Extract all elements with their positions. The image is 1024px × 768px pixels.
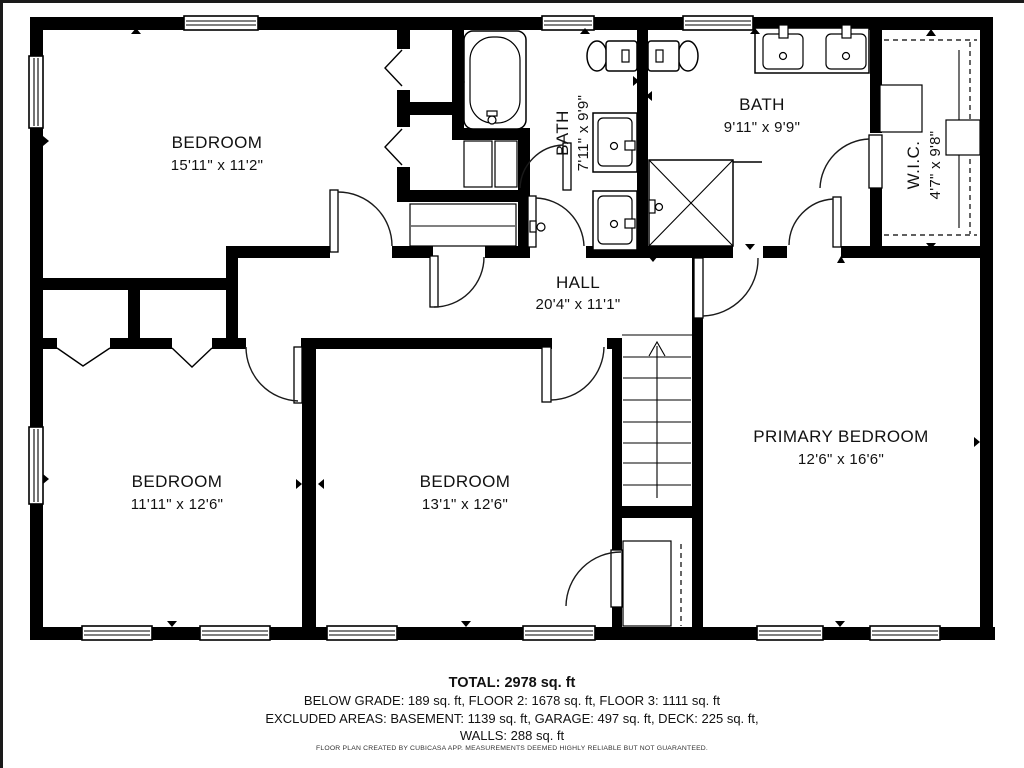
- door: [566, 550, 622, 607]
- bathtub-icon: [464, 31, 526, 129]
- wall: [226, 246, 238, 347]
- wall: [30, 627, 995, 640]
- wall: [407, 102, 452, 115]
- bifold-door-chevron: [385, 50, 402, 86]
- wall: [238, 246, 330, 258]
- door: [789, 197, 841, 247]
- room-label: BEDROOM: [172, 133, 263, 152]
- window: [870, 626, 940, 640]
- floor-plan-drawing: BEDROOM 15'11" x 11'2" BATH 7'11" x 9'9"…: [0, 0, 1024, 768]
- stairs: [622, 335, 692, 498]
- toilet-icon: [587, 41, 637, 71]
- window: [683, 16, 753, 30]
- toilet-icon: [648, 41, 698, 71]
- wic-shelf: [946, 120, 980, 155]
- wall: [110, 338, 172, 349]
- page-left-edge: [0, 0, 3, 768]
- door: [330, 190, 392, 252]
- room-labels: BEDROOM 15'11" x 11'2" BATH 7'11" x 9'9"…: [131, 95, 944, 513]
- wall: [408, 190, 518, 202]
- bifold-door-chevron: [385, 129, 402, 165]
- wall: [612, 607, 622, 628]
- door: [430, 256, 484, 307]
- floor-plan-page: BEDROOM 15'11" x 11'2" BATH 7'11" x 9'9"…: [0, 0, 1024, 768]
- wall: [612, 338, 622, 512]
- area-breakdown-1: BELOW GRADE: 189 sq. ft, FLOOR 2: 1678 s…: [304, 693, 721, 708]
- room-label: BATH: [553, 110, 572, 156]
- wall: [302, 338, 316, 640]
- room-dims: 15'11" x 11'2": [171, 157, 264, 174]
- window: [29, 56, 43, 128]
- room-label: BEDROOM: [420, 472, 511, 491]
- disclaimer-text: FLOOR PLAN CREATED BY CUBICASA APP. MEAS…: [316, 745, 708, 752]
- wall: [841, 246, 980, 258]
- sink-icon: [593, 191, 637, 250]
- wall: [301, 338, 552, 349]
- room-label: BEDROOM: [132, 472, 223, 491]
- wall: [980, 17, 993, 640]
- door: [246, 347, 302, 403]
- wall: [397, 28, 410, 49]
- wall: [637, 28, 648, 258]
- page-top-edge: [0, 0, 1024, 3]
- area-breakdown-3: WALLS: 288 sq. ft: [460, 728, 565, 743]
- under-stairs-closet: [623, 541, 681, 626]
- wall: [212, 338, 246, 349]
- room-dims: 20'4" x 11'1": [535, 296, 620, 313]
- area-breakdown-2: EXCLUDED AREAS: BASEMENT: 1139 sq. ft, G…: [265, 711, 758, 726]
- sink-icon: [593, 113, 637, 172]
- window: [523, 626, 595, 640]
- wall: [870, 188, 882, 246]
- window: [29, 427, 43, 504]
- door: [820, 135, 882, 188]
- room-dims: 11'11" x 12'6": [131, 496, 224, 513]
- window: [327, 626, 397, 640]
- window: [200, 626, 270, 640]
- room-label: PRIMARY BEDROOM: [753, 427, 928, 446]
- window: [542, 16, 594, 30]
- window: [184, 16, 258, 30]
- linen-closet-shelf: [410, 204, 516, 246]
- wall: [763, 246, 787, 258]
- wall: [392, 246, 433, 258]
- room-dims: 7'11" x 9'9": [575, 95, 592, 171]
- room-label: HALL: [556, 273, 600, 292]
- window: [82, 626, 152, 640]
- closet-door-chevron: [172, 348, 212, 367]
- wall: [648, 246, 733, 258]
- wic-shelf: [880, 85, 922, 132]
- footer-summary: TOTAL: 2978 sq. ft BELOW GRADE: 189 sq. …: [265, 675, 758, 752]
- room-dims: 13'1" x 12'6": [422, 496, 508, 513]
- room-dims: 12'6" x 16'6": [798, 451, 884, 468]
- room-dims: 4'7" x 9'8": [927, 131, 944, 200]
- room-label: W.I.C.: [904, 141, 923, 190]
- door: [694, 258, 758, 318]
- bath-cabinets: [464, 141, 517, 187]
- wall: [613, 506, 693, 518]
- room-dims: 9'11" x 9'9": [724, 119, 800, 136]
- wall: [128, 288, 140, 340]
- closet-door-chevron: [57, 348, 110, 366]
- door: [542, 347, 604, 402]
- room-label: BATH: [739, 95, 785, 114]
- wall: [485, 246, 528, 258]
- window: [757, 626, 823, 640]
- double-vanity: [755, 25, 869, 73]
- shower-icon: [649, 160, 762, 246]
- shower-head-icon: [530, 221, 545, 232]
- wall: [30, 338, 57, 349]
- total-area-text: TOTAL: 2978 sq. ft: [449, 675, 576, 691]
